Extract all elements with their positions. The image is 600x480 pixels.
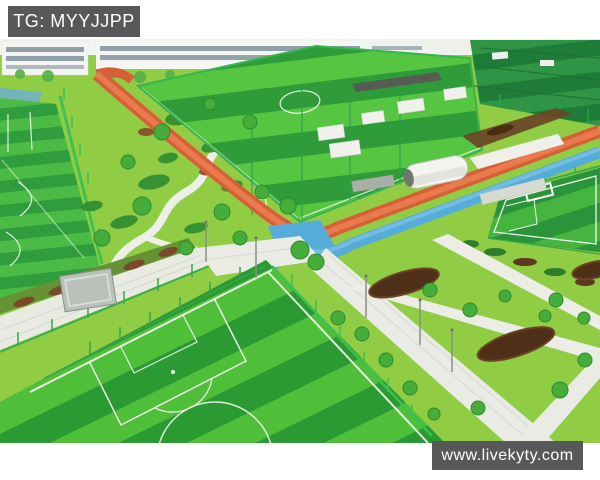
aerial-photo <box>0 0 600 480</box>
pavilion <box>60 268 117 312</box>
watermark-badge: www.livekyty.com <box>432 441 583 470</box>
screenshot-canvas: TG: MYYJJPP www.livekyty.com <box>0 0 600 480</box>
watermark-label: www.livekyty.com <box>441 447 573 465</box>
tg-badge: TG: MYYJJPP <box>8 6 140 37</box>
tg-badge-label: TG: MYYJJPP <box>13 11 135 32</box>
aerial-photo-illustration <box>0 0 600 480</box>
